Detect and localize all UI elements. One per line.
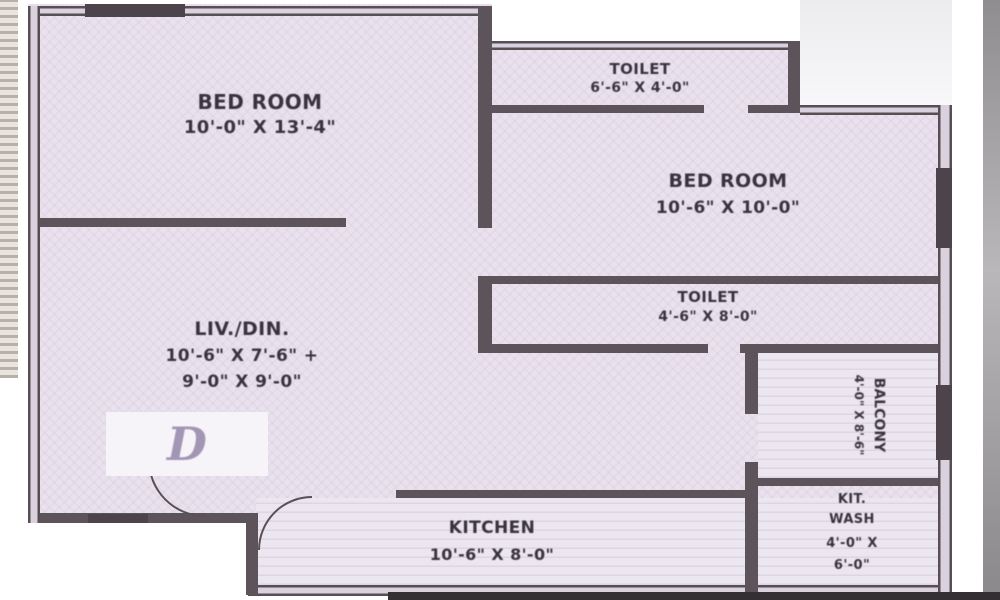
wall-segment bbox=[492, 344, 708, 353]
wall-segment bbox=[800, 105, 952, 115]
window-marker bbox=[936, 168, 952, 248]
wall-segment bbox=[396, 490, 750, 498]
living-dining-label: LIV./DIN. bbox=[194, 318, 289, 340]
bedroom2-label: BED ROOM bbox=[669, 170, 788, 192]
window-marker bbox=[936, 385, 952, 460]
wall-segment bbox=[492, 276, 938, 284]
bedroom2-dimensions: 10'-6" X 10'-0" bbox=[656, 198, 800, 218]
wall-segment bbox=[478, 6, 492, 228]
bedroom1-dimensions: 10'-0" X 13'-4" bbox=[184, 117, 336, 138]
kit-wash-label-2: WASH bbox=[829, 512, 875, 527]
wall-segment bbox=[28, 6, 40, 523]
living-dining-dimensions-2: 9'-0" X 9'-0" bbox=[182, 372, 302, 392]
kit-wash-label-1: KIT. bbox=[838, 492, 866, 507]
kit-wash-dimensions-1: 4'-0" X bbox=[826, 536, 878, 551]
toilet2-dimensions: 4'-6" X 8'-0" bbox=[658, 309, 758, 325]
bedroom1-label: BED ROOM bbox=[198, 90, 323, 114]
floor-plan: BED ROOM 10'-0" X 13'-4" TOILET 6'-6" X … bbox=[0, 0, 1000, 600]
exterior-cutout-bottom-left bbox=[0, 523, 248, 600]
balcony-label: BALCONY bbox=[867, 375, 889, 456]
photo-edge-right bbox=[983, 0, 1000, 600]
unit-label-box: D bbox=[106, 412, 268, 476]
kit-wash-dimensions-2: 6'-0" bbox=[834, 558, 870, 573]
door-threshold bbox=[88, 514, 148, 523]
wall-segment bbox=[492, 105, 704, 113]
exterior-cutout-top-right bbox=[800, 0, 952, 105]
window-marker bbox=[85, 4, 185, 17]
kitchen-label: KITCHEN bbox=[449, 518, 535, 538]
wall-segment bbox=[478, 276, 492, 353]
balcony-room: BALCONY 4'-0" X 8'-6" bbox=[800, 352, 938, 478]
wall-segment bbox=[788, 41, 800, 113]
unit-letter: D bbox=[167, 417, 207, 471]
toilet1-dimensions: 6'-6" X 4'-0" bbox=[590, 80, 690, 96]
balcony-dimensions: 4'-0" X 8'-6" bbox=[848, 375, 867, 456]
wall-segment bbox=[246, 513, 258, 595]
window-railing-strip bbox=[0, 0, 18, 378]
wall-segment bbox=[492, 41, 800, 50]
photo-edge-bottom bbox=[388, 592, 1000, 600]
wall-segment bbox=[745, 462, 758, 595]
toilet1-label: TOILET bbox=[609, 60, 670, 78]
wall-segment bbox=[745, 352, 758, 414]
toilet2-label: TOILET bbox=[677, 288, 738, 306]
wall-segment bbox=[28, 218, 346, 227]
wall-segment bbox=[757, 478, 938, 486]
living-dining-dimensions-1: 10'-6" X 7'-6" + bbox=[166, 346, 319, 366]
balcony-label-group: BALCONY 4'-0" X 8'-6" bbox=[848, 375, 890, 456]
kitchen-dimensions: 10'-6" X 8'-0" bbox=[430, 545, 555, 564]
floor-plan-image: BED ROOM 10'-0" X 13'-4" TOILET 6'-6" X … bbox=[0, 0, 1000, 600]
